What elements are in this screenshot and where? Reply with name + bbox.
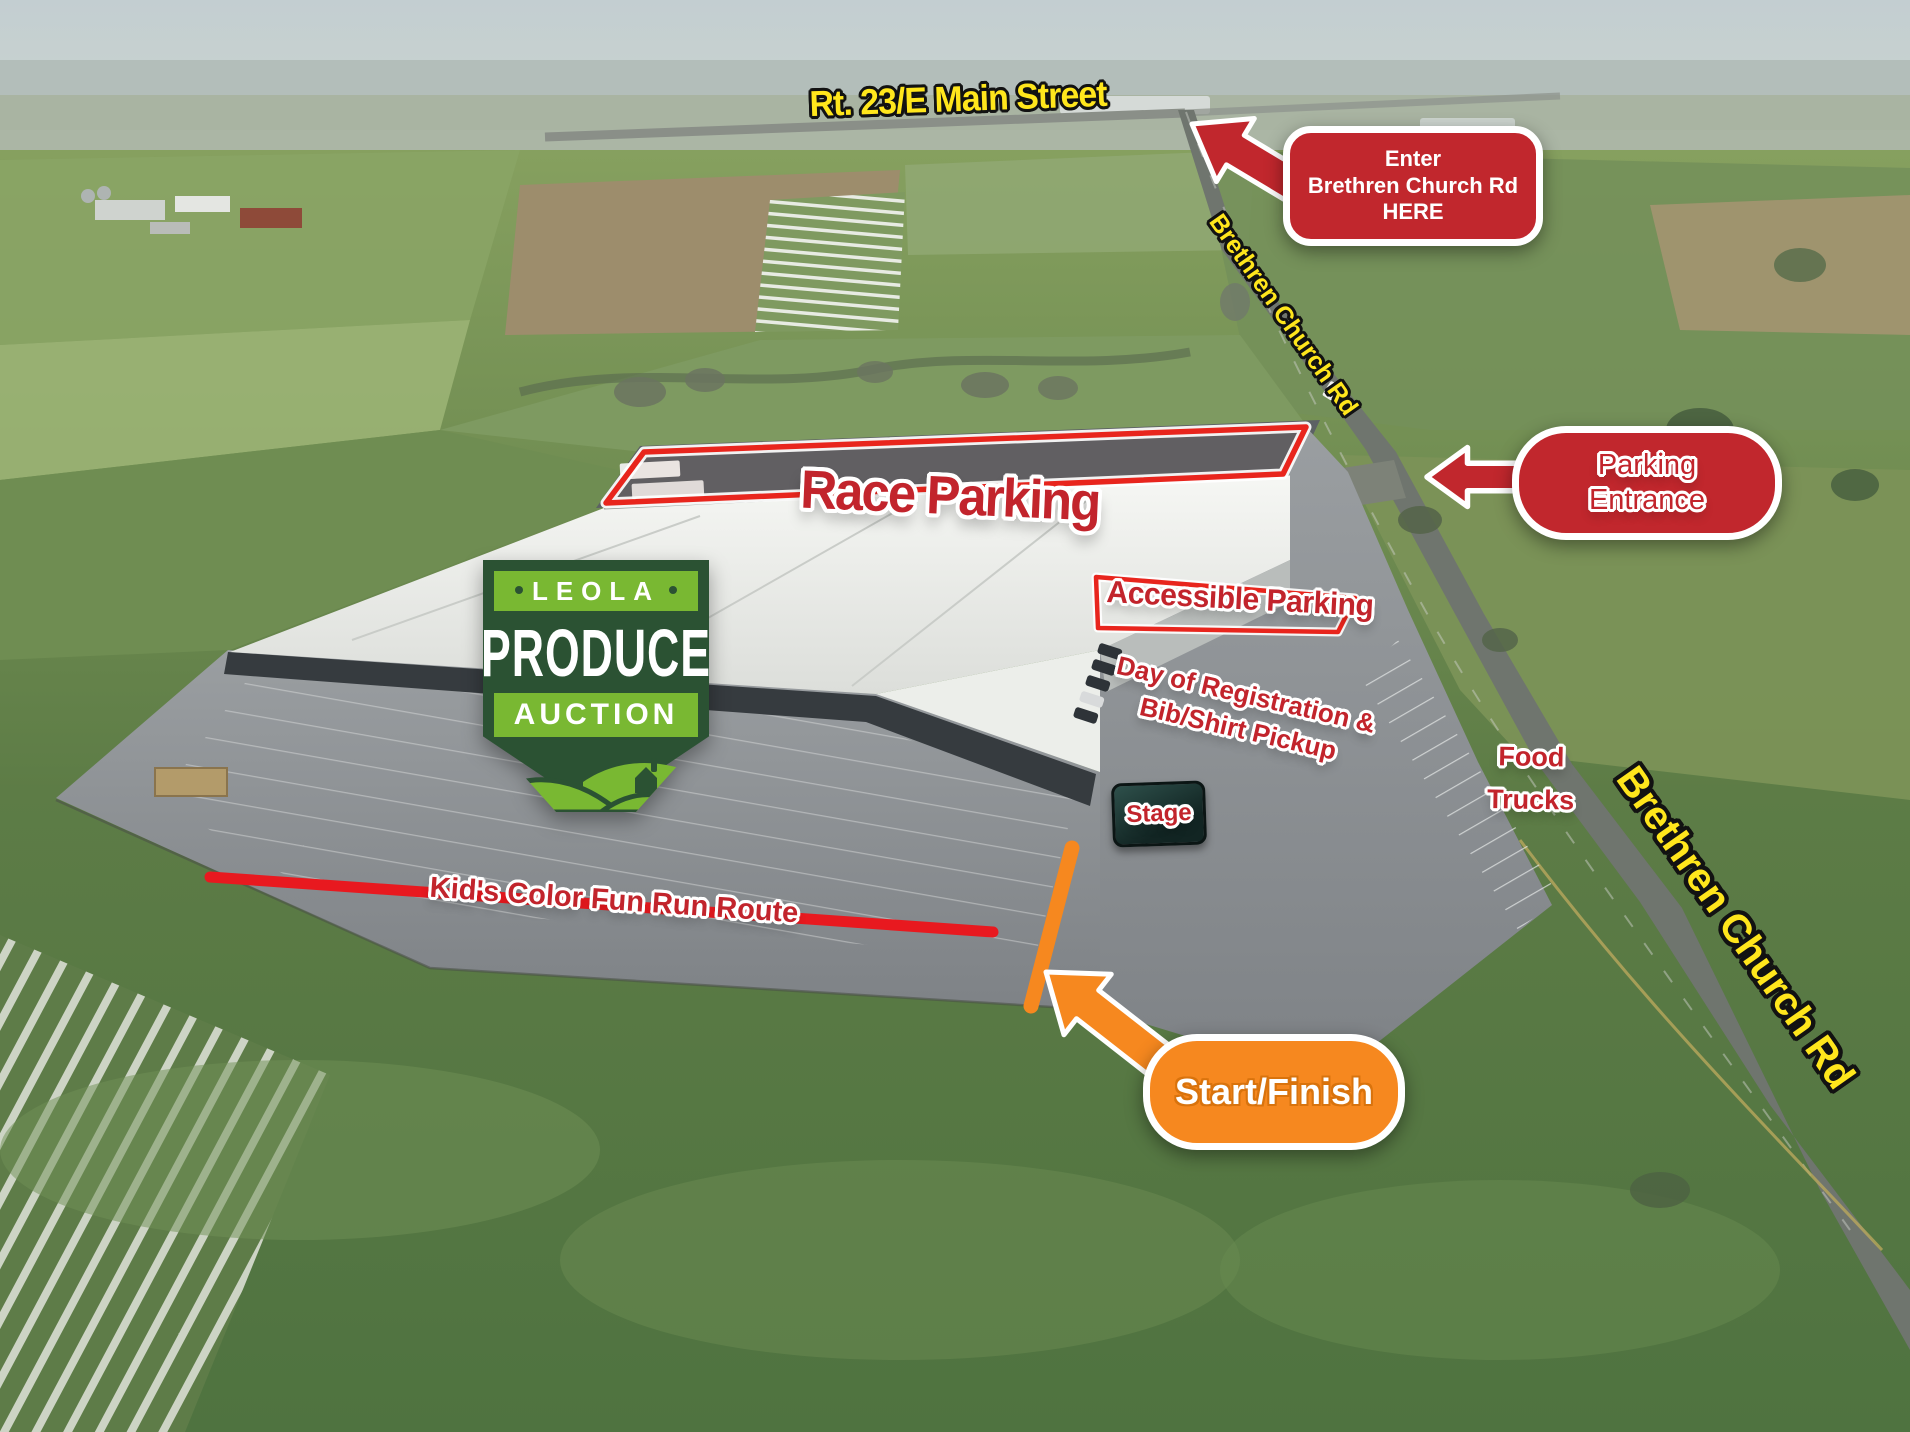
enter-here-line1: Enter (1385, 146, 1441, 173)
logo-top-band: LEOLA (494, 571, 698, 611)
logo-name-mid-wrap: PRODUCE (494, 615, 698, 689)
logo-name-top: LEOLA (532, 576, 660, 607)
food-trucks-line1: Food (1487, 735, 1575, 780)
food-trucks-label: Food Trucks (1487, 735, 1576, 823)
stage-label: Stage (1126, 799, 1192, 829)
logo-dot (669, 586, 677, 594)
parking-entrance-callout: Parking Entrance (1512, 426, 1782, 540)
food-trucks-line2: Trucks (1487, 778, 1575, 823)
start-finish-callout: Start/Finish (1143, 1034, 1405, 1150)
stage-sign: Stage (1111, 780, 1207, 847)
enter-here-callout: Enter Brethren Church Rd HERE (1283, 126, 1543, 246)
enter-here-line2: Brethren Church Rd (1308, 173, 1518, 200)
annotation-overlay (0, 0, 1910, 1432)
logo-name-bottom: AUCTION (514, 698, 679, 732)
start-finish-label: Start/Finish (1175, 1071, 1373, 1113)
leola-produce-auction-logo: LEOLA PRODUCE AUCTION (483, 560, 709, 812)
parking-entrance-line1: Parking (1598, 448, 1696, 483)
logo-bottom-band: AUCTION (494, 693, 698, 737)
logo-dot (515, 586, 523, 594)
race-parking-label: Race Parking (799, 459, 1101, 534)
event-map: Rt. 23/E Main Street Brethren Church Rd … (0, 0, 1910, 1432)
logo-name-mid: PRODUCE (481, 613, 711, 691)
logo-hills-icon (483, 738, 709, 812)
enter-here-line3: HERE (1382, 199, 1443, 226)
parking-entrance-line2: Entrance (1589, 483, 1705, 518)
